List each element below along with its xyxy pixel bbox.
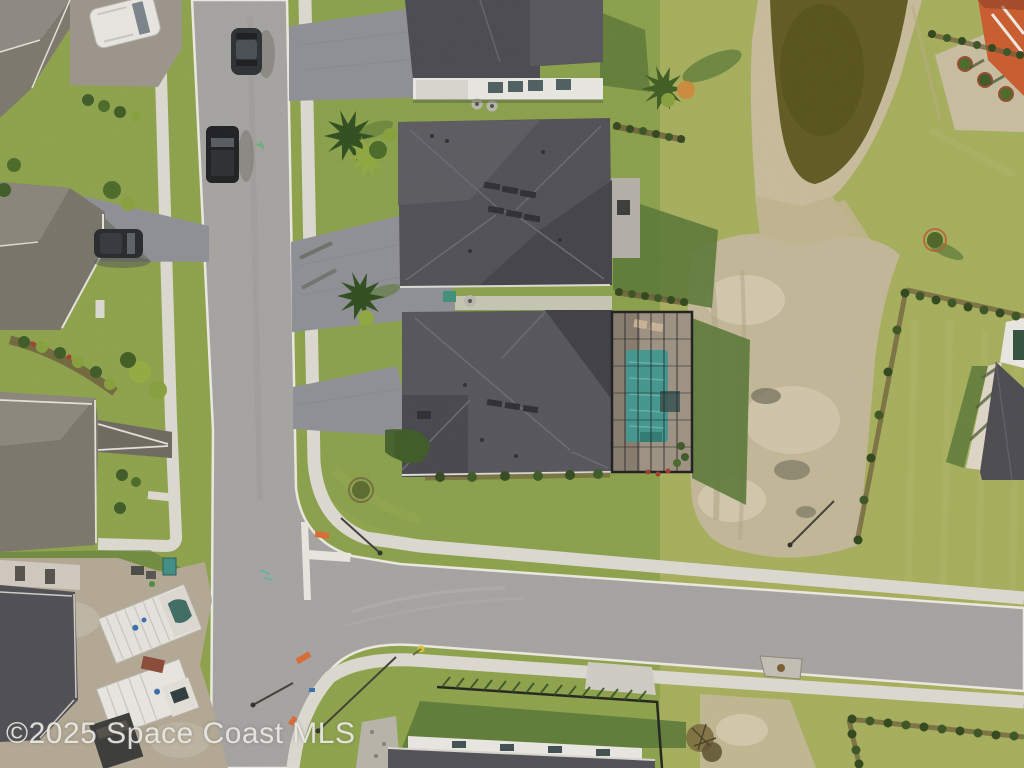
aerial-scene [0, 0, 1024, 768]
photo-grain [0, 0, 1024, 768]
aerial-photo: ©2025 Space Coast MLS [0, 0, 1024, 768]
watermark-text: ©2025 Space Coast MLS [6, 717, 355, 751]
